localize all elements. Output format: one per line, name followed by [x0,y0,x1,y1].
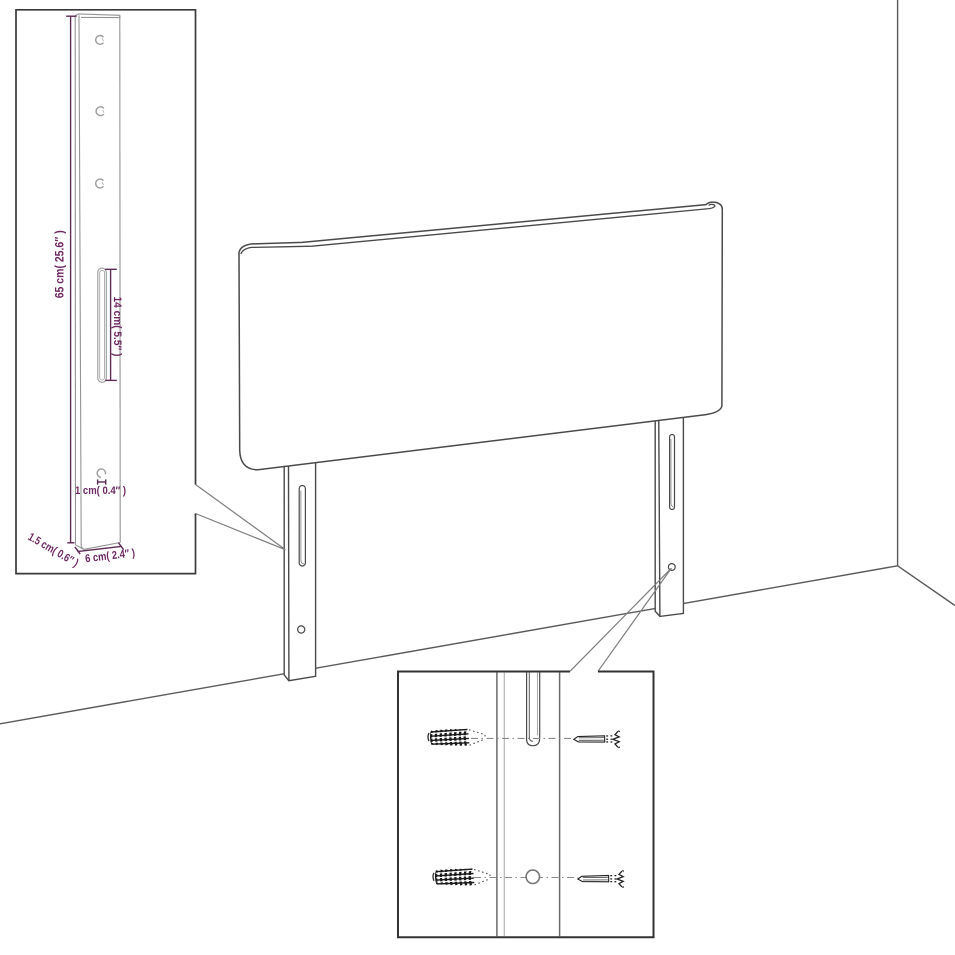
svg-text:65 cm( 25.6″ ): 65 cm( 25.6″ ) [52,230,66,298]
svg-text:1 cm( 0.4″ ): 1 cm( 0.4″ ) [75,485,126,497]
svg-text:14 cm( 5.5″ ): 14 cm( 5.5″ ) [111,297,123,357]
